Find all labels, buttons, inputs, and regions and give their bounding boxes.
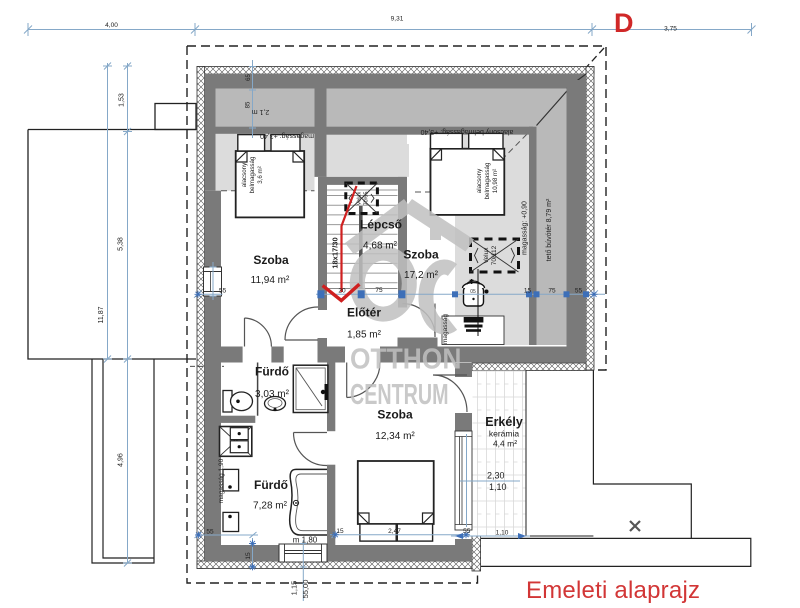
svg-text:alacsony: alacsony xyxy=(241,162,248,187)
svg-text:55: 55 xyxy=(206,529,214,536)
svg-text:Előtér: Előtér xyxy=(347,306,381,320)
svg-text:Szoba: Szoba xyxy=(253,253,289,267)
svg-text:2,1 m: 2,1 m xyxy=(252,108,270,115)
svg-text:CENTRUM: CENTRUM xyxy=(350,379,449,411)
svg-text:Velux: Velux xyxy=(483,247,490,264)
svg-text:15: 15 xyxy=(524,287,532,294)
svg-text:1,53: 1,53 xyxy=(119,93,126,107)
svg-text:2,30: 2,30 xyxy=(487,471,505,481)
svg-text:Erkély: Erkély xyxy=(485,415,523,429)
svg-text:magasság: +0,90: magasság: +0,90 xyxy=(522,201,529,255)
svg-text:18x17/30: 18x17/30 xyxy=(331,237,340,268)
svg-text:75: 75 xyxy=(548,287,556,294)
svg-text:tető búvótér 8,79 m²: tető búvótér 8,79 m² xyxy=(546,198,553,261)
svg-text:2,47: 2,47 xyxy=(388,528,401,535)
svg-text:Lépcső: Lépcső xyxy=(360,218,402,232)
svg-text:5,38: 5,38 xyxy=(118,237,125,251)
svg-text:magasság 1,90: magasság 1,90 xyxy=(218,458,225,503)
svg-text:55: 55 xyxy=(219,288,227,295)
svg-text:55: 55 xyxy=(575,287,583,294)
svg-text:3,03 m²: 3,03 m² xyxy=(255,389,290,400)
svg-text:4,4 m²: 4,4 m² xyxy=(493,439,517,449)
svg-text:1,10: 1,10 xyxy=(496,530,509,537)
svg-text:m 1,80: m 1,80 xyxy=(293,536,318,545)
svg-text:70/65: 70/65 xyxy=(364,192,370,206)
svg-text:Fürdő: Fürdő xyxy=(255,365,289,379)
svg-text:Velux: Velux xyxy=(357,192,363,206)
svg-text:55,00: 55,00 xyxy=(301,580,310,599)
svg-text:Fürdő: Fürdő xyxy=(254,478,288,492)
svg-text:12,34 m²: 12,34 m² xyxy=(375,431,415,442)
svg-text:15: 15 xyxy=(245,552,252,560)
svg-text:1,10: 1,10 xyxy=(489,482,507,492)
svg-text:11,87: 11,87 xyxy=(98,306,105,323)
svg-text:4,68 m²: 4,68 m² xyxy=(363,241,398,252)
svg-text:alacsony: alacsony xyxy=(476,168,483,193)
svg-text:3,75: 3,75 xyxy=(664,26,677,33)
svg-text:11,94 m²: 11,94 m² xyxy=(251,275,290,286)
svg-text:belmagasság: belmagasság xyxy=(249,156,256,193)
svg-text:15: 15 xyxy=(336,528,344,535)
svg-text:magasság: +3,40: magasság: +3,40 xyxy=(260,132,314,139)
svg-text:alacsony belmagasság: +3,40: alacsony belmagasság: +3,40 xyxy=(420,128,513,135)
svg-text:3,6 m²: 3,6 m² xyxy=(257,166,264,184)
svg-text:1,15: 1,15 xyxy=(290,581,299,596)
svg-text:belmagasság: belmagasság xyxy=(484,162,491,199)
svg-text:Szoba: Szoba xyxy=(403,248,439,262)
svg-text:55: 55 xyxy=(463,528,471,535)
svg-text:70/112: 70/112 xyxy=(491,245,498,265)
svg-text:magasság: magasság xyxy=(442,314,449,344)
svg-text:20: 20 xyxy=(338,287,346,294)
svg-text:Emeleti alaprajz: Emeleti alaprajz xyxy=(526,577,700,604)
svg-text:10,98 m²: 10,98 m² xyxy=(492,169,499,193)
svg-text:D: D xyxy=(614,8,634,38)
svg-text:1,85 m²: 1,85 m² xyxy=(347,330,382,341)
svg-text:OTTHON: OTTHON xyxy=(350,342,461,374)
svg-text:4,00: 4,00 xyxy=(105,22,118,29)
svg-text:65: 65 xyxy=(246,74,252,81)
svg-text:7,28 m²: 7,28 m² xyxy=(253,501,288,512)
svg-text:kerámia: kerámia xyxy=(489,429,520,439)
svg-text:85: 85 xyxy=(246,101,252,108)
svg-text:9,31: 9,31 xyxy=(391,16,404,23)
svg-text:4,96: 4,96 xyxy=(118,453,125,467)
svg-text:75: 75 xyxy=(375,287,383,294)
svg-text:17,2 m²: 17,2 m² xyxy=(404,270,439,281)
svg-text:Szoba: Szoba xyxy=(377,408,413,422)
